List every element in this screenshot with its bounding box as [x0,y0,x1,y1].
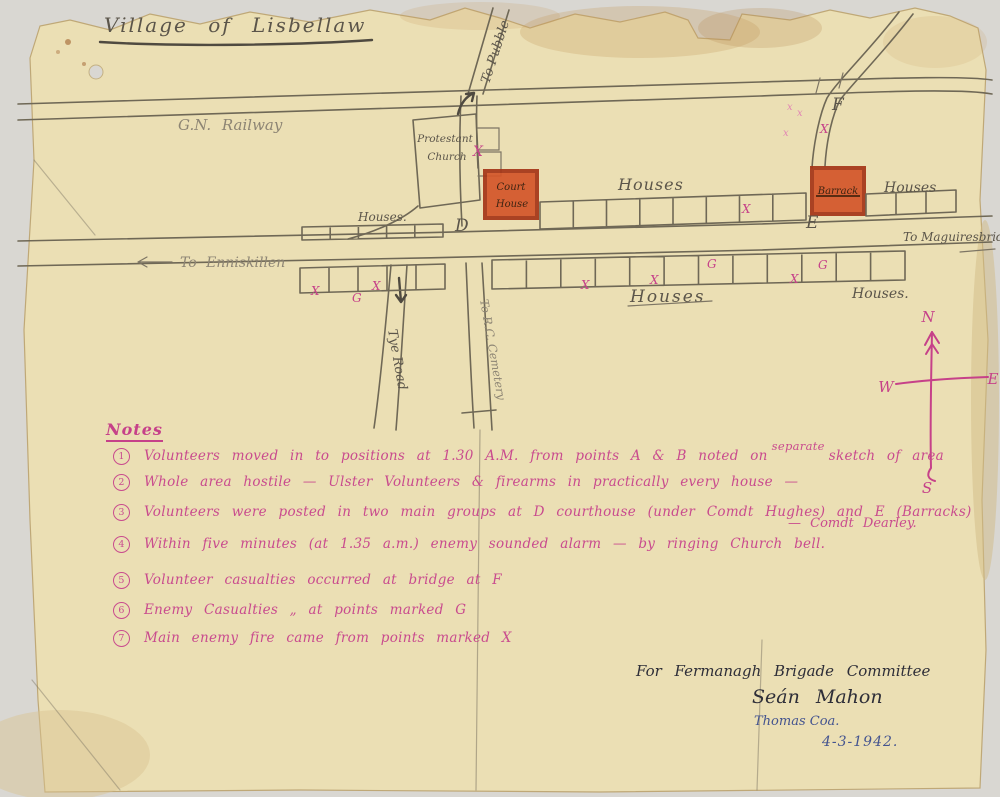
church-label-2: Church [427,151,466,163]
mark-g: G [352,291,362,305]
point-e-label: E [805,213,819,233]
mark-x-small: x [787,102,793,113]
church-label-1: Protestant [416,133,473,145]
point-f-label: F [831,95,845,115]
stain [883,16,987,68]
compass-s: S [922,479,932,497]
mark-g: G [707,257,717,271]
rust-spot [82,62,86,66]
railway-label: G.N. Railway [178,116,283,134]
paper-outline [24,8,988,792]
court-house-label-1: Court [497,182,527,193]
compass-w: W [878,378,895,396]
compass-e: E [987,370,999,388]
stain [400,2,560,30]
punch-hole [89,65,103,79]
mark-x: X [649,273,659,287]
court-house-label-2: House [495,199,528,210]
map-drawing: Village of Lisbellaw G.N. Railway To Pub… [0,0,1000,797]
compass-n: N [920,308,935,326]
rust-spot [65,39,71,45]
houses-label-top-mid: Houses [617,175,684,194]
edge-shadow [971,220,999,580]
mark-x: X [580,278,590,292]
mark-x: X [741,202,751,216]
mark-x: X [472,144,484,160]
mark-x: X [310,284,320,298]
houses-label-bottom-right: Houses. [851,286,909,302]
houses-label-west: Houses. [357,210,407,224]
mark-x-small: x [797,108,803,119]
court-house-box [485,171,537,218]
scanned-sketch-map: Village of Lisbellaw G.N. Railway To Pub… [0,0,1000,797]
mark-x-small: x [783,128,789,139]
mark-x: X [789,272,799,286]
mark-x: X [371,279,381,293]
stain [698,8,822,48]
road-east-label: To Maguiresbridge [903,230,1000,244]
road-west-label: To Enniskillen [180,255,285,271]
mark-x: X [819,122,829,136]
point-d-label: D [454,216,469,236]
page-title: Village of Lisbellaw [104,13,366,37]
houses-label-top-right: Houses [883,180,936,196]
rust-spot [56,50,60,54]
mark-g: G [818,258,828,272]
